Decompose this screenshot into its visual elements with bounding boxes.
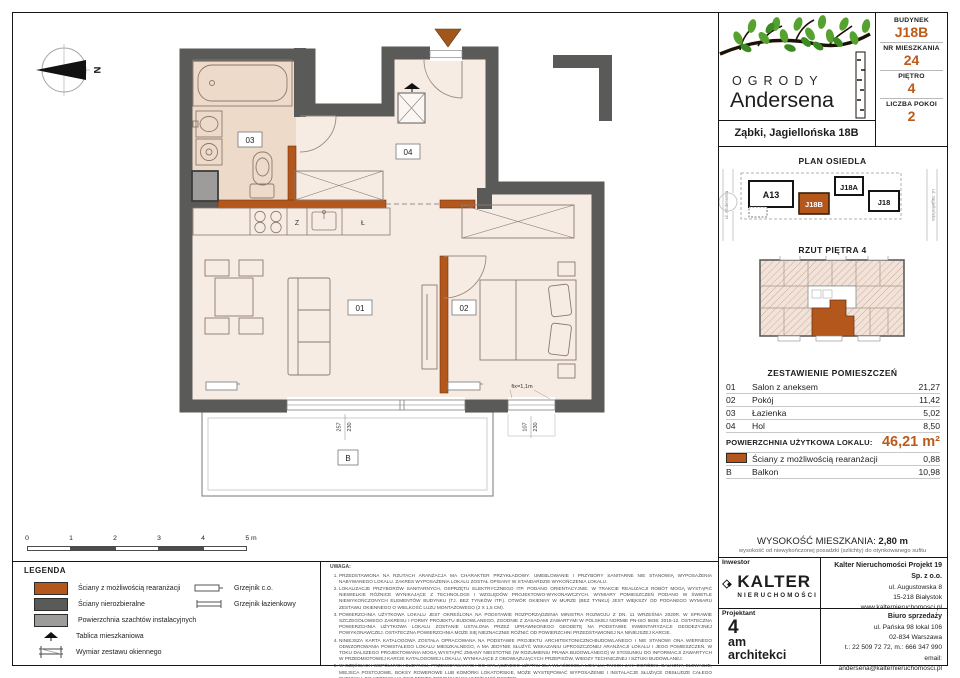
rearrangeable-wall-swatch [34,582,68,595]
radiator-co-icon [194,583,224,593]
structural-wall-swatch [34,598,68,611]
project-address: Ząbki, Jagiellońska 18B [718,127,875,139]
scale-label: 2 [113,535,117,542]
floor-thumb-title: RZUT PIĘTRA 4 [718,245,947,255]
kalter-logo-text: KALTER [737,572,818,592]
note-item: LOKALIZACJE PRZYBORÓW SANITARNYCH, OSPRZ… [339,586,712,611]
street-right-label: ul. Jagiellońska [931,189,936,221]
building-j18: J18 [869,191,899,211]
neighbour-walls [553,55,612,121]
floor-value: 4 [876,80,947,96]
birch-trunk [856,52,865,118]
table-row: 01Salon z aneksem21,27 [726,380,940,394]
floor-plan: Z Ł [172,26,712,502]
compass-north-label: N [91,67,102,74]
svg-text:03: 03 [246,136,255,145]
svg-text:02: 02 [460,304,469,313]
brand-logo: OGRODY Andersena [718,12,875,120]
building-a13: A13 [749,181,793,217]
note-item: POWIERZCHNIA UŻYTKOWA LOKALU JEST OKREŚL… [339,612,712,637]
total-area-value: 46,21 m² [873,434,940,450]
installation-shaft [192,171,218,201]
building-value: J18B [876,24,947,40]
architect-logo-4: 4 [728,619,818,636]
legend-label: Grzejnik c.o. [234,585,273,592]
fix-window-note: fix=1,1m [511,384,533,390]
sales-office-contact: Biuro sprzedaży ul. Pańska 98 lokal 106 … [824,612,942,674]
legend-label: Grzejnik łazienkowy [234,601,296,608]
entry-marker-icon [435,29,461,47]
info-label: NR MIESZKANIA [876,45,947,52]
legend-label: Ściany z możliwością rearanżacji [78,585,180,592]
svg-text:04: 04 [404,148,413,157]
note-item: NINIEJSZA KARTA KATALOGOWA ZOSTAŁA OPRAC… [339,638,712,663]
scale-label: 5 m [245,535,256,542]
designer-cell: Projektant 4 am architekci [722,610,818,662]
svg-text:J18A: J18A [840,183,859,192]
kitchen-letter-dishwasher: Z [295,220,300,227]
apartment-height-note: wysokość od niewykończonej posadzki (szl… [718,548,947,554]
apartment-height: WYSOKOŚĆ MIESZKANIA: 2,80 m [718,536,947,547]
sales-email-link[interactable]: email: andersena@kalternieruchomosci.pl [824,654,942,674]
scale-label: 3 [157,535,161,542]
radiator-bathroom-icon [194,599,224,609]
scale-label: 4 [201,535,205,542]
site-plan-map: A13 J18B J18A J18 ul. Andersena ul. Jagi… [719,167,947,243]
table-row: 02Pokój11,42 [726,393,940,407]
balcony-area-row: BBalkon10,98 [726,465,940,479]
brand-name-text: Andersena [730,88,834,113]
scale-label: 0 [25,535,29,542]
note-item: W CZĘŚCIACH WSPÓLNYCH BUDYNKU, PRZEWIDYW… [339,663,712,678]
legend-title: LEGENDA [24,566,318,575]
investor-label: Inwestor [722,559,818,566]
compass: N [20,24,108,112]
info-label: PIĘTRO [876,73,947,80]
total-area-label: POWIERZCHNIA UŻYTKOWA LOKALU: [726,438,873,447]
scale-label: 1 [69,535,73,542]
svg-text:J18: J18 [878,198,891,207]
notes-title: UWAGA: [330,564,712,571]
window-dim-legend-icon [38,645,64,659]
svg-text:107: 107 [523,422,529,431]
bedroom-window [508,397,555,436]
designer-label: Projektant [722,610,818,617]
legend-label: Powierzchnia szachtów instalacyjnych [78,617,196,624]
svg-text:A13: A13 [763,190,780,200]
svg-text:230: 230 [347,422,353,431]
investor-contact: Kalter Nieruchomości Projekt 19 Sp. z o.… [824,561,942,613]
balcony-window [287,397,465,414]
info-label: BUDYNEK [876,17,947,24]
unit-number-value: 24 [876,52,947,68]
kalter-logo-sub: NIERUCHOMOŚCI [737,592,818,599]
rooms-table-title: ZESTAWIENIE POMIESZCZEŃ [718,368,947,378]
catalog-sheet: N [0,0,960,678]
investor-cell: Inwestor KALTER NIERUCHOMOŚCI [722,559,818,606]
legend-label: Tablica mieszkaniowa [76,633,144,640]
site-plan-title: PLAN OSIEDLA [718,156,947,166]
kitchen-letter-fridge: Ł [361,220,365,227]
architect-logo-name: architekci [728,649,818,662]
architect-logo-am: am [728,636,818,649]
street-left-label: ul. Andersena [724,191,729,220]
apartment-height-value: 2,80 m [878,536,908,547]
legend: LEGENDA Ściany z możliwością rearanżacji… [24,566,318,664]
svg-text:01: 01 [356,304,365,313]
note-item: PRZEDSTAWIONA NA RZUTACH ARANŻACJA MA CH… [339,573,712,585]
notes-block: UWAGA: PRZEDSTAWIONA NA RZUTACH ARANŻACJ… [330,564,712,664]
legend-label: Ściany nierozbieralne [78,601,145,608]
floor-thumbnail [750,256,914,348]
table-row: 03Łazienka5,02 [726,406,940,420]
svg-text:J18B: J18B [805,200,824,209]
brand-top-text: OGRODY [732,74,824,88]
table-row: 04Hol8,50 [726,419,940,433]
rooms-count-value: 2 [876,108,947,124]
walls-area-row: Ściany z możliwością rearanżacji0,88 [726,452,940,466]
svg-text:B: B [345,454,350,463]
shaft-swatch [34,614,68,627]
building-j18a: J18A [835,177,863,195]
building-j18b: J18B [799,193,829,214]
svg-text:257: 257 [337,422,343,431]
kalter-logo-icon [722,570,733,600]
scale-bar: 0 1 2 3 4 5 m [25,535,275,557]
tablica-legend-icon [42,631,60,641]
rooms-table: 01Salon z aneksem21,27 02Pokój11,42 03Ła… [720,380,946,490]
unit-info: BUDYNEK J18B NR MIESZKANIA 24 PIĘTRO 4 L… [876,12,947,146]
total-area-row: POWIERZCHNIA UŻYTKOWA LOKALU: 46,21 m² [726,432,940,453]
legend-label: Wymiar zestawu okiennego [76,649,162,656]
svg-text:230: 230 [533,422,539,431]
info-label: LICZBA POKOI [876,101,947,108]
orange-wall-swatch [726,453,747,463]
